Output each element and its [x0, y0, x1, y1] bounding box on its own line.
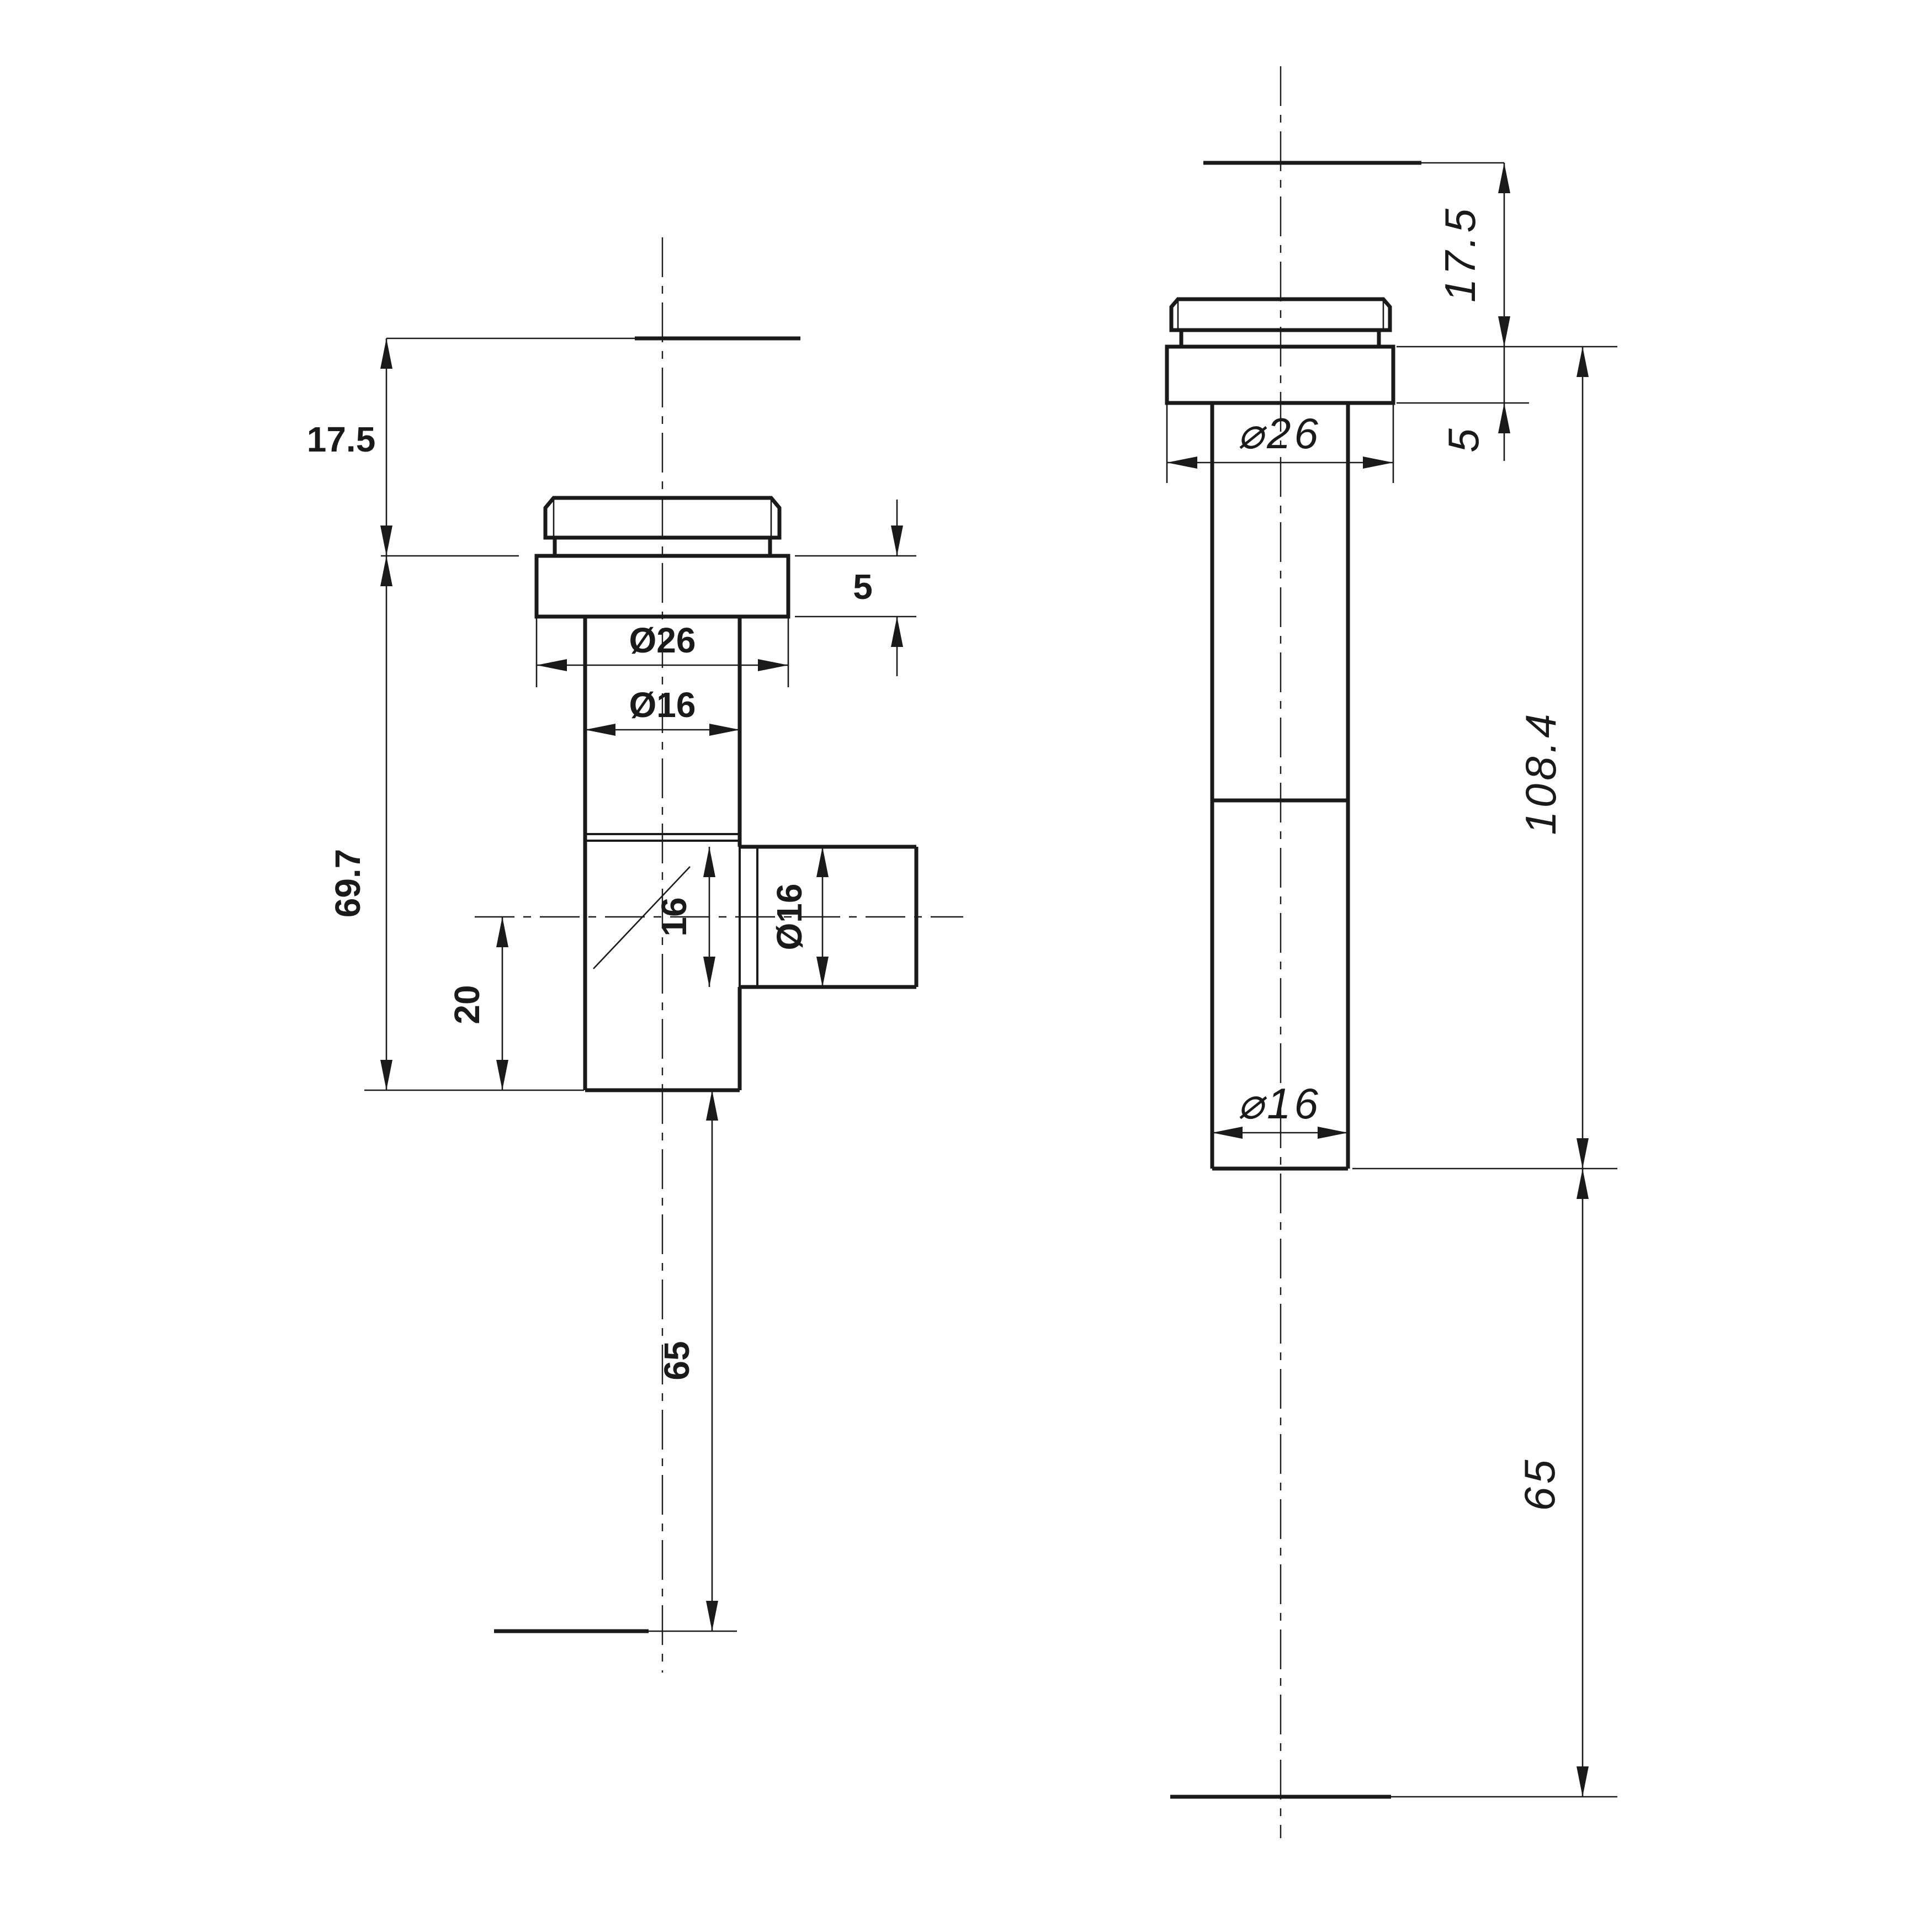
- arrowhead: [1363, 457, 1393, 469]
- arrowhead: [1318, 1127, 1348, 1139]
- arrowhead: [380, 526, 392, 556]
- dim-label-65: 65: [657, 1341, 697, 1380]
- arrowhead: [709, 724, 740, 736]
- arrowhead: [380, 1060, 392, 1090]
- arrowhead: [1577, 347, 1589, 377]
- arrowhead: [1498, 403, 1510, 433]
- dim-label-5: 5: [853, 567, 873, 607]
- drawing-sheet: 17.5 69.7 5 Ø26 Ø16 16 Ø16 20: [0, 0, 1932, 1932]
- arrowhead: [891, 526, 903, 556]
- dim-label-17-5: 17.5: [1436, 205, 1484, 302]
- technical-drawing-canvas: 17.5 69.7 5 Ø26 Ø16 16 Ø16 20: [0, 0, 1932, 1932]
- arrowhead: [703, 847, 715, 877]
- arrowhead: [537, 659, 567, 671]
- arrowhead: [1577, 1138, 1589, 1169]
- arrowhead: [706, 1601, 718, 1631]
- dim-label-16: 16: [654, 897, 694, 936]
- side-view: 17.5 5 ⌀26 108.4 ⌀16 65: [1167, 66, 1617, 1838]
- arrowhead: [1498, 163, 1510, 193]
- dim-label-d16: ⌀16: [1238, 1079, 1321, 1128]
- arrowhead: [1212, 1127, 1243, 1139]
- arrowhead: [380, 556, 392, 586]
- dim-label-17-5: 17.5: [307, 420, 376, 459]
- dim-label-20: 20: [447, 985, 487, 1024]
- dim-label-5: 5: [1439, 425, 1488, 452]
- arrowhead: [496, 1060, 508, 1090]
- dim-label-108-4: 108.4: [1516, 710, 1565, 835]
- dim-label-d16-top: Ø16: [629, 685, 696, 725]
- front-view: 17.5 69.7 5 Ø26 Ø16 16 Ø16 20: [307, 237, 963, 1673]
- arrowhead: [1577, 1169, 1589, 1199]
- arrowhead: [816, 957, 829, 987]
- arrowhead: [758, 659, 788, 671]
- arrowhead: [496, 917, 508, 947]
- arrowhead: [1498, 316, 1510, 347]
- arrowhead: [891, 617, 903, 647]
- arrowhead: [585, 724, 615, 736]
- arrowhead: [706, 1090, 718, 1121]
- arrowhead: [1167, 457, 1197, 469]
- arrowhead: [380, 338, 392, 369]
- dim-label-bd16: Ø16: [769, 884, 809, 951]
- dim-label-d26: ⌀26: [1238, 409, 1321, 458]
- arrowhead: [703, 957, 715, 987]
- dim-label-65: 65: [1515, 1457, 1564, 1511]
- dim-label-d26: Ø26: [629, 620, 696, 660]
- arrowhead: [1577, 1766, 1589, 1797]
- dim-label-69-7: 69.7: [328, 849, 368, 918]
- arrowhead: [816, 847, 829, 877]
